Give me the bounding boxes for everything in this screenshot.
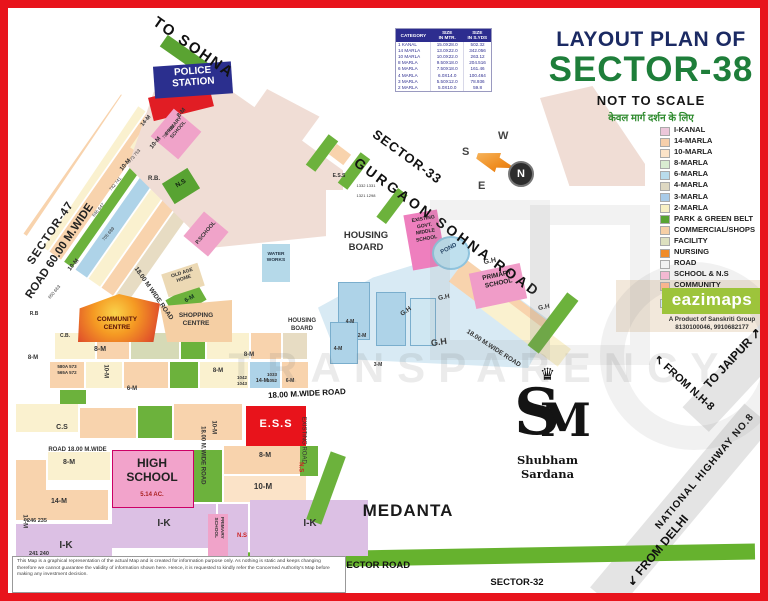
compass-west-label: W xyxy=(498,130,508,142)
developer-logo: ♛ S M Shubham Sardana xyxy=(490,366,605,474)
plot-label: 10-M xyxy=(248,483,278,492)
plot-numbers: 580A 573 565A 572 xyxy=(50,364,84,375)
plot-label: 8-M xyxy=(206,368,230,375)
plot-label: N.S xyxy=(297,457,304,477)
legend-item: ROAD xyxy=(660,259,764,269)
plot-label: 2-M xyxy=(352,334,372,340)
size-table-cell: 2 MARLA xyxy=(396,85,431,91)
size-table-cell: 59.8 xyxy=(464,85,491,91)
hindi-subtitle: केवल मार्ग दर्शन के लिए xyxy=(538,110,764,124)
primary-school-label-south: PRIMARY SCHOOL xyxy=(212,512,224,544)
size-table-header-cell: CATEGORY xyxy=(396,29,431,42)
legend-swatch-icon xyxy=(660,127,670,136)
plot-label: 14-M xyxy=(44,498,74,506)
size-table-cell: 5.0X10.0 xyxy=(431,85,464,91)
plot-label: 8-M xyxy=(238,352,260,359)
developer-name: Shubham Sardana xyxy=(490,453,605,481)
not-to-scale-label: NOT TO SCALE xyxy=(538,93,764,108)
disclaimer-box: This Map is a graphical representation o… xyxy=(12,556,346,593)
plot-label: 8-M xyxy=(88,346,112,354)
size-table-header-cell: SIZE IN S.YDS xyxy=(464,29,491,42)
plot-label: R.B xyxy=(24,312,44,318)
legend-item: 8-MARLA xyxy=(660,159,764,169)
gh-block xyxy=(330,322,358,364)
brand-phone: 8130100046, 9910682177 xyxy=(662,324,762,331)
legend-swatch-icon xyxy=(660,249,670,258)
legend-label: 14-MARLA xyxy=(674,137,712,145)
housing-board-label: HOUSING BOARD xyxy=(330,230,402,254)
plot-label: I-K xyxy=(48,540,84,551)
legend-item: 14-MARLA xyxy=(660,137,764,147)
legend-label: SCHOOL & N.S xyxy=(674,270,729,278)
eazimaps-logo-text: eazimaps xyxy=(672,290,753,309)
plot-block xyxy=(60,390,86,404)
medanta-label: MEDANTA xyxy=(348,502,468,521)
page-title-sector: SECTOR-38 xyxy=(538,52,764,89)
compass-east-label: E xyxy=(478,180,485,192)
plot-size-table: CATEGORYSIZE IN MTR.SIZE IN S.YDS 1 KANA… xyxy=(396,29,491,91)
layout-plan-canvas: POLICE STATIONHOUSING BOARDE.S.S1332 133… xyxy=(0,0,768,601)
legend-swatch-icon xyxy=(660,271,670,280)
plot-label: 8-M xyxy=(56,459,82,467)
ess-label: E.S.S xyxy=(246,418,306,430)
legend-item: 10-MARLA xyxy=(660,148,764,158)
plot-label: C.B. xyxy=(54,334,76,340)
legend-label: 4-MARLA xyxy=(674,181,708,189)
road-18m-label: 18.00 M.WIDE ROAD xyxy=(199,405,206,505)
legend-label: 6-MARLA xyxy=(674,170,708,178)
plot-label: 4-M xyxy=(340,320,360,326)
housing-board-label-2: HOUSING BOARD xyxy=(276,318,328,333)
size-table-row: 3 MARLA5.50X12.078.936 xyxy=(396,79,491,85)
legend-swatch-icon xyxy=(660,215,670,224)
plot-label: 10-M xyxy=(210,414,217,440)
road-18m-label: 18.00 M.WIDE ROAD xyxy=(248,387,366,402)
plot-block xyxy=(138,406,172,438)
plot-numbers: 1033 1052 xyxy=(262,372,282,384)
plot-label: 4-M xyxy=(328,347,348,353)
legend-item: 3-MARLA xyxy=(660,193,764,203)
legend-label: 3-MARLA xyxy=(674,193,708,201)
legend-item: SCHOOL & N.S xyxy=(660,270,764,280)
rb-label: R.B. xyxy=(142,176,166,183)
plot-block xyxy=(283,333,307,359)
legend-label: FACILITY xyxy=(674,237,708,245)
legend-swatch-icon xyxy=(660,160,670,169)
size-table-row: 1 KANAL15.0X28.0502.32 xyxy=(396,42,491,48)
page-title-line1: LAYOUT PLAN OF xyxy=(538,28,764,52)
plot-label: 10-M xyxy=(102,358,109,384)
size-table-row: 6 MARLA7.50X18.0161.46 xyxy=(396,66,491,72)
legend-item: COMMERCIAL/SHOPS xyxy=(660,226,764,236)
sector-32-label: SECTOR-32 xyxy=(482,578,552,588)
plot-numbers: 1042 1043 xyxy=(232,375,252,387)
size-table-row: 4 MARLA6.0X14.0100.464 xyxy=(396,73,491,79)
plot-label: 6-M xyxy=(120,386,144,393)
legend-item: 6-MARLA xyxy=(660,170,764,180)
size-table-header-cell: SIZE IN MTR. xyxy=(431,29,464,42)
monogram-m: M xyxy=(540,393,591,447)
legend-item: PARK & GREEN BELT xyxy=(660,215,764,225)
sm-monogram-icon: S M xyxy=(490,383,605,449)
plot-size-table-body: 1 KANAL15.0X28.0502.3214 MARLA13.0X22.03… xyxy=(396,42,491,92)
size-table-row: 2 MARLA5.0X10.059.8 xyxy=(396,85,491,91)
plot-block xyxy=(170,362,198,388)
trademark-label: TM xyxy=(762,282,768,288)
legend-label: 2-MARLA xyxy=(674,204,708,212)
plot-block xyxy=(80,408,136,438)
plot-size-table-header: CATEGORYSIZE IN MTR.SIZE IN S.YDS xyxy=(396,29,491,42)
compass-rose: W S E N xyxy=(452,128,542,208)
legend-swatch-icon xyxy=(660,237,670,246)
plot-block xyxy=(124,362,168,388)
eazimaps-logo: eazimaps TM xyxy=(662,288,762,314)
legend-label: PARK & GREEN BELT xyxy=(674,215,753,223)
legend-swatch-icon xyxy=(660,193,670,202)
legend-swatch-icon xyxy=(660,149,670,158)
brand-block: eazimaps TM A Product of Sanskriti Group… xyxy=(662,288,762,331)
plot-label: I-K xyxy=(146,518,182,529)
plot-label: C.S xyxy=(50,424,74,432)
legend-swatch-icon xyxy=(660,171,670,180)
plot-label: 8-M xyxy=(252,452,278,460)
plot-label: 3-M xyxy=(368,363,388,369)
plot-block xyxy=(224,446,306,474)
legend-item: NURSING xyxy=(660,248,764,258)
legend-label: NURSING xyxy=(674,248,709,256)
legend-label: 10-MARLA xyxy=(674,148,712,156)
legend-item: FACILITY xyxy=(660,237,764,247)
water-works-label: WATER WORKS xyxy=(262,252,290,264)
compass-south-label: S xyxy=(462,146,469,158)
legend-swatch-icon xyxy=(660,226,670,235)
plot-label: 6-M xyxy=(280,379,300,385)
legend: I-KANAL14-MARLA10-MARLA8-MARLA6-MARLA4-M… xyxy=(660,126,764,310)
ess-label-small: E.S.S xyxy=(324,174,354,180)
compass-north-icon: N xyxy=(508,161,534,187)
brand-tagline: A Product of Sanskriti Group xyxy=(662,316,762,324)
plot-numbers: 246 235 xyxy=(20,518,54,524)
plot-block xyxy=(174,404,242,440)
plot-label: 8-M xyxy=(22,355,44,362)
community-centre-label: COMMUNITY CENTRE xyxy=(82,316,152,332)
legend-label: ROAD xyxy=(674,259,696,267)
high-school-label: HIGH SCHOOL xyxy=(114,456,190,485)
legend-swatch-icon xyxy=(660,260,670,269)
road-18m-label: ROAD 18.00 M.WIDE xyxy=(40,447,115,454)
legend-item: 2-MARLA xyxy=(660,204,764,214)
plot-label: I-K xyxy=(292,518,328,529)
legend-label: I-KANAL xyxy=(674,126,705,134)
legend-item: 4-MARLA xyxy=(660,181,764,191)
legend-swatch-icon xyxy=(660,182,670,191)
legend-label: COMMERCIAL/SHOPS xyxy=(674,226,755,234)
legend-item: I-KANAL xyxy=(660,126,764,136)
plot-numbers: 650 663 xyxy=(43,279,66,305)
title-block: LAYOUT PLAN OF SECTOR-38 NOT TO SCALE के… xyxy=(538,28,764,124)
legend-swatch-icon xyxy=(660,138,670,147)
high-school-area-label: 5.14 AC. xyxy=(114,492,190,499)
legend-label: 8-MARLA xyxy=(674,159,708,167)
plot-numbers: 1321 1298 xyxy=(336,194,396,198)
legend-swatch-icon xyxy=(660,204,670,213)
plot-label: N.S xyxy=(232,533,252,540)
